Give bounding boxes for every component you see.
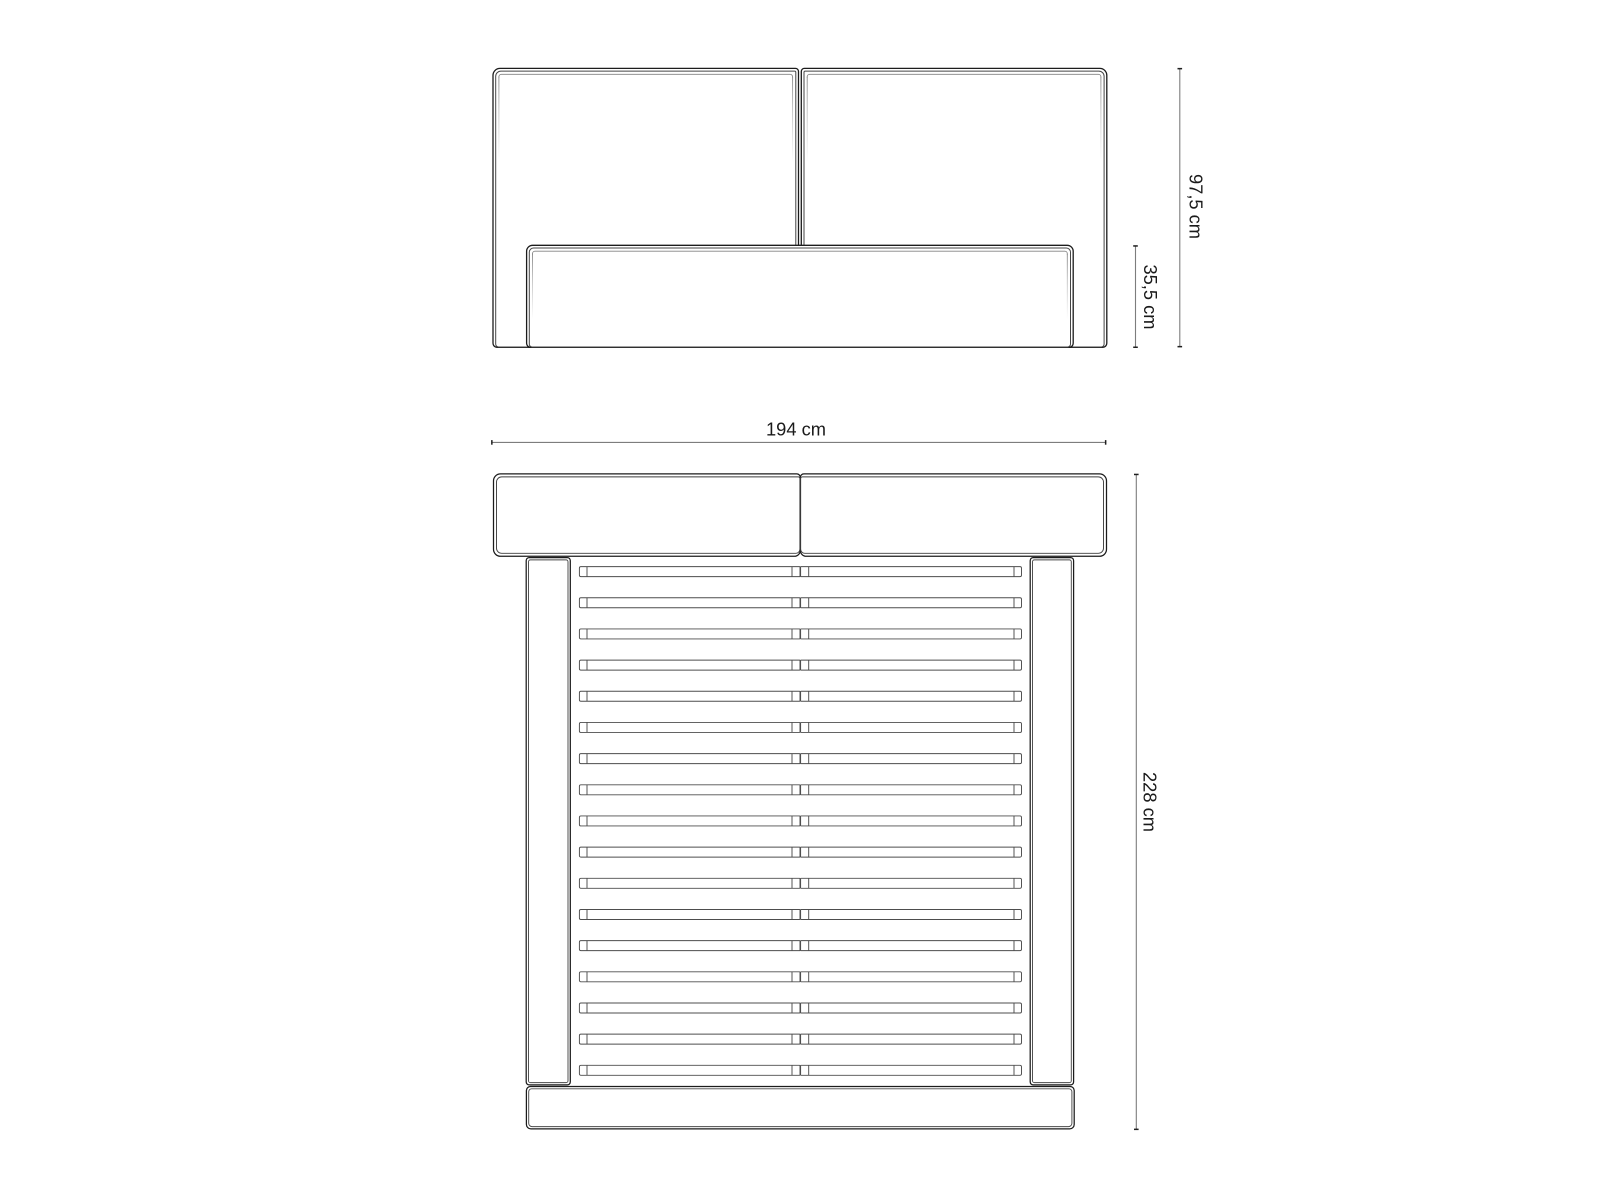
svg-text:194 cm: 194 cm xyxy=(766,419,826,440)
svg-text:97,5 cm: 97,5 cm xyxy=(1186,174,1207,239)
svg-text:228 cm: 228 cm xyxy=(1139,772,1160,832)
svg-text:35,5 cm: 35,5 cm xyxy=(1140,264,1161,329)
